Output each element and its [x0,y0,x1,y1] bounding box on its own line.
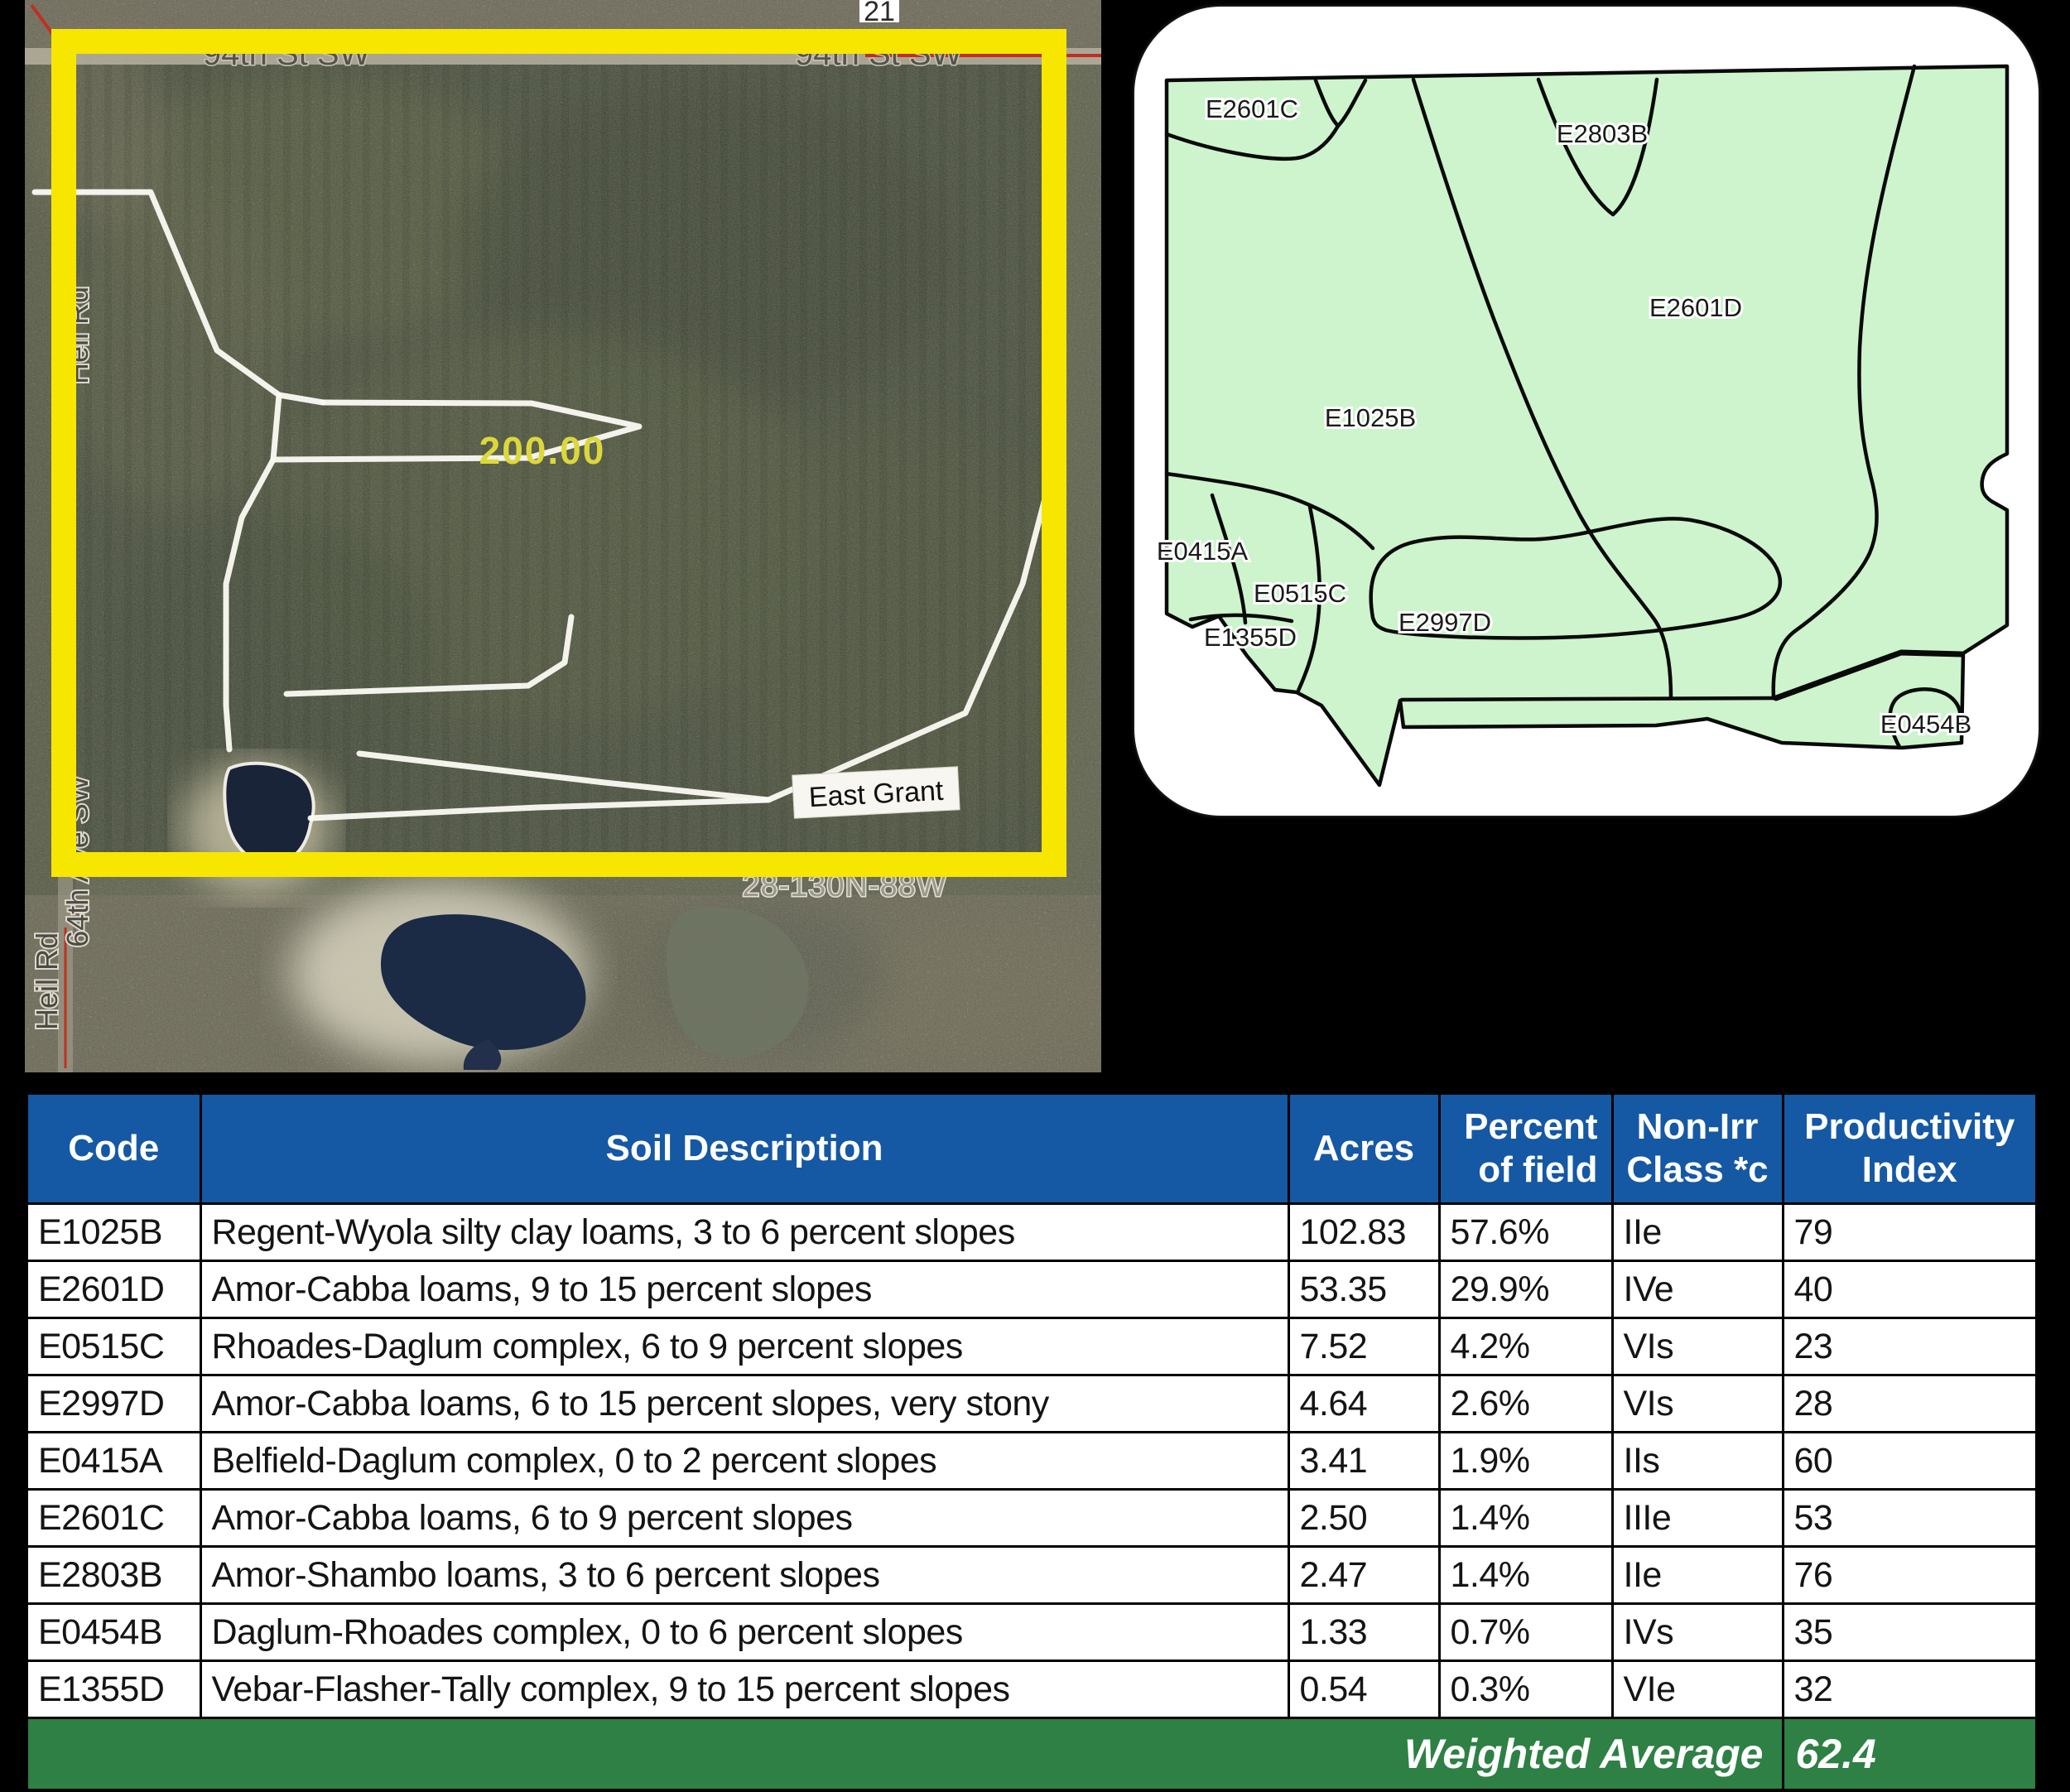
header-productivity-index: Productivity Index [1783,1093,2037,1204]
header-pi-line2: Index [1785,1149,2035,1192]
code-cell: E0515C [26,1318,200,1375]
class-cell: VIs [1612,1375,1783,1433]
aerial-photo-canvas: 94th St SW 94th St SW 21 28-130N-88W Hei… [25,0,1101,1072]
soil-polygon-label: E2601C [1206,94,1298,123]
header-desc-line1: Soil Description [203,1127,1287,1170]
svg-text:Heil Rd: Heil Rd [30,932,64,1030]
soil-polygon-label: E1025B [1325,403,1416,432]
table-row: E1025B Regent-Wyola silty clay loams, 3 … [26,1204,2037,1261]
class-cell: IIe [1612,1547,1783,1604]
soil-polygon-label: E1355D [1204,623,1297,652]
header-pi-line1: Productivity [1785,1106,2035,1149]
header-soil-description: Soil Description [200,1093,1288,1204]
weighted-average-value: 62.4 [1783,1718,2037,1791]
description-cell: Vebar-Flasher-Tally complex, 9 to 15 per… [200,1661,1288,1718]
aerial-photo: 94th St SW 94th St SW 21 28-130N-88W Hei… [25,0,1101,1072]
tract-name-callout: East Grant [792,767,960,818]
acres-cell: 4.64 [1288,1375,1439,1433]
table-row: E2997D Amor-Cabba loams, 6 to 15 percent… [26,1375,2037,1433]
table-row: E0454B Daglum-Rhoades complex, 0 to 6 pe… [26,1604,2037,1661]
header-acres-line1: Acres [1291,1127,1437,1170]
percent-cell: 4.2% [1439,1318,1612,1375]
class-cell: IIIe [1612,1490,1783,1547]
soils-table: Code Soil Description Acres Percent of f… [25,1091,2039,1792]
code-cell: E2997D [26,1375,200,1433]
table-row: E1355D Vebar-Flasher-Tally complex, 9 to… [26,1661,2037,1718]
table-row: E0415A Belfield-Daglum complex, 0 to 2 p… [26,1433,2037,1490]
class-cell: IIe [1612,1204,1783,1261]
soil-polygon-label: E0515C [1254,579,1346,608]
soil-polygon-label: E2997D [1398,608,1491,637]
code-cell: E2803B [26,1547,200,1604]
header-acres: Acres [1288,1093,1439,1204]
soil-polygon-label: E2803B [1557,119,1648,148]
code-cell: E0415A [26,1433,200,1490]
soil-polygon-label: E0454B [1880,710,1971,739]
code-cell: E2601C [26,1490,200,1547]
percent-cell: 0.3% [1439,1661,1612,1718]
table-row: E0515C Rhoades-Daglum complex, 6 to 9 pe… [26,1318,2037,1375]
header-class-line2: Class *c [1615,1149,1781,1192]
productivity-cell: 35 [1783,1604,2037,1661]
photo-grain-light [25,0,1101,1072]
soil-map-outer-boundary [1167,66,2007,785]
productivity-cell: 79 [1783,1204,2037,1261]
code-cell: E0454B [26,1604,200,1661]
header-code: Code [26,1093,200,1204]
header-non-irr-class: Non-Irr Class *c [1612,1093,1783,1204]
percent-cell: 0.7% [1439,1604,1612,1661]
description-cell: Daglum-Rhoades complex, 0 to 6 percent s… [200,1604,1288,1661]
productivity-cell: 28 [1783,1375,2037,1433]
acres-cell: 2.50 [1288,1490,1439,1547]
soils-table-footer: Weighted Average 62.4 [26,1718,2037,1791]
header-row: Code Soil Description Acres Percent of f… [26,1093,2037,1204]
productivity-cell: 40 [1783,1261,2037,1318]
percent-cell: 29.9% [1439,1261,1612,1318]
percent-cell: 1.9% [1439,1433,1612,1490]
productivity-cell: 32 [1783,1661,2037,1718]
soils-table-header: Code Soil Description Acres Percent of f… [26,1093,2037,1204]
productivity-cell: 60 [1783,1433,2037,1490]
description-cell: Regent-Wyola silty clay loams, 3 to 6 pe… [200,1204,1288,1261]
productivity-cell: 23 [1783,1318,2037,1375]
class-cell: VIs [1612,1318,1783,1375]
productivity-cell: 53 [1783,1490,2037,1547]
percent-cell: 2.6% [1439,1375,1612,1433]
weighted-average-label: Weighted Average [26,1718,1783,1791]
description-cell: Amor-Cabba loams, 6 to 9 percent slopes [200,1490,1288,1547]
section-number: 21 [864,0,895,27]
acres-cell: 3.41 [1288,1433,1439,1490]
acres-cell: 53.35 [1288,1261,1439,1318]
percent-cell: 1.4% [1439,1490,1612,1547]
soil-polygon-label: E2601D [1649,293,1742,322]
header-class-line1: Non-Irr [1615,1106,1781,1149]
acres-cell: 7.52 [1288,1318,1439,1375]
description-cell: Amor-Cabba loams, 9 to 15 percent slopes [200,1261,1288,1318]
percent-cell: 57.6% [1439,1204,1612,1261]
acres-cell: 102.83 [1288,1204,1439,1261]
acres-cell: 1.33 [1288,1604,1439,1661]
table-row: E2601D Amor-Cabba loams, 9 to 15 percent… [26,1261,2037,1318]
productivity-cell: 76 [1783,1547,2037,1604]
header-percent-line1: Percent [1442,1106,1598,1149]
table-row: E2803B Amor-Shambo loams, 3 to 6 percent… [26,1547,2037,1604]
class-cell: IVs [1612,1604,1783,1661]
soils-table-body: E1025B Regent-Wyola silty clay loams, 3 … [26,1204,2037,1718]
table-row: E2601C Amor-Cabba loams, 6 to 9 percent … [26,1490,2037,1547]
soil-map-canvas: E2601C E2803B E2601D E1025B E0415A E0515… [1134,7,2039,816]
soil-polygon-label: E0415A [1157,537,1249,566]
header-percent-of-field: Percent of field [1439,1093,1612,1204]
percent-cell: 1.4% [1439,1547,1612,1604]
class-cell: IIs [1612,1433,1783,1490]
description-cell: Belfield-Daglum complex, 0 to 2 percent … [200,1433,1288,1490]
description-cell: Rhoades-Daglum complex, 6 to 9 percent s… [200,1318,1288,1375]
header-code-line1: Code [29,1127,199,1170]
code-cell: E1355D [26,1661,200,1718]
class-cell: IVe [1612,1261,1783,1318]
acres-cell: 0.54 [1288,1661,1439,1718]
code-cell: E1025B [26,1204,200,1261]
left-road-label-3: Heil Rd [30,932,64,1030]
description-cell: Amor-Cabba loams, 6 to 15 percent slopes… [200,1375,1288,1433]
acres-cell: 2.47 [1288,1547,1439,1604]
weighted-average-row: Weighted Average 62.4 [26,1718,2037,1791]
soil-map-panel: E2601C E2803B E2601D E1025B E0415A E0515… [1134,7,2039,816]
description-cell: Amor-Shambo loams, 3 to 6 percent slopes [200,1547,1288,1604]
code-cell: E2601D [26,1261,200,1318]
acreage-label: 200.00 [479,429,606,472]
header-percent-line2: of field [1442,1149,1598,1192]
class-cell: VIe [1612,1661,1783,1718]
